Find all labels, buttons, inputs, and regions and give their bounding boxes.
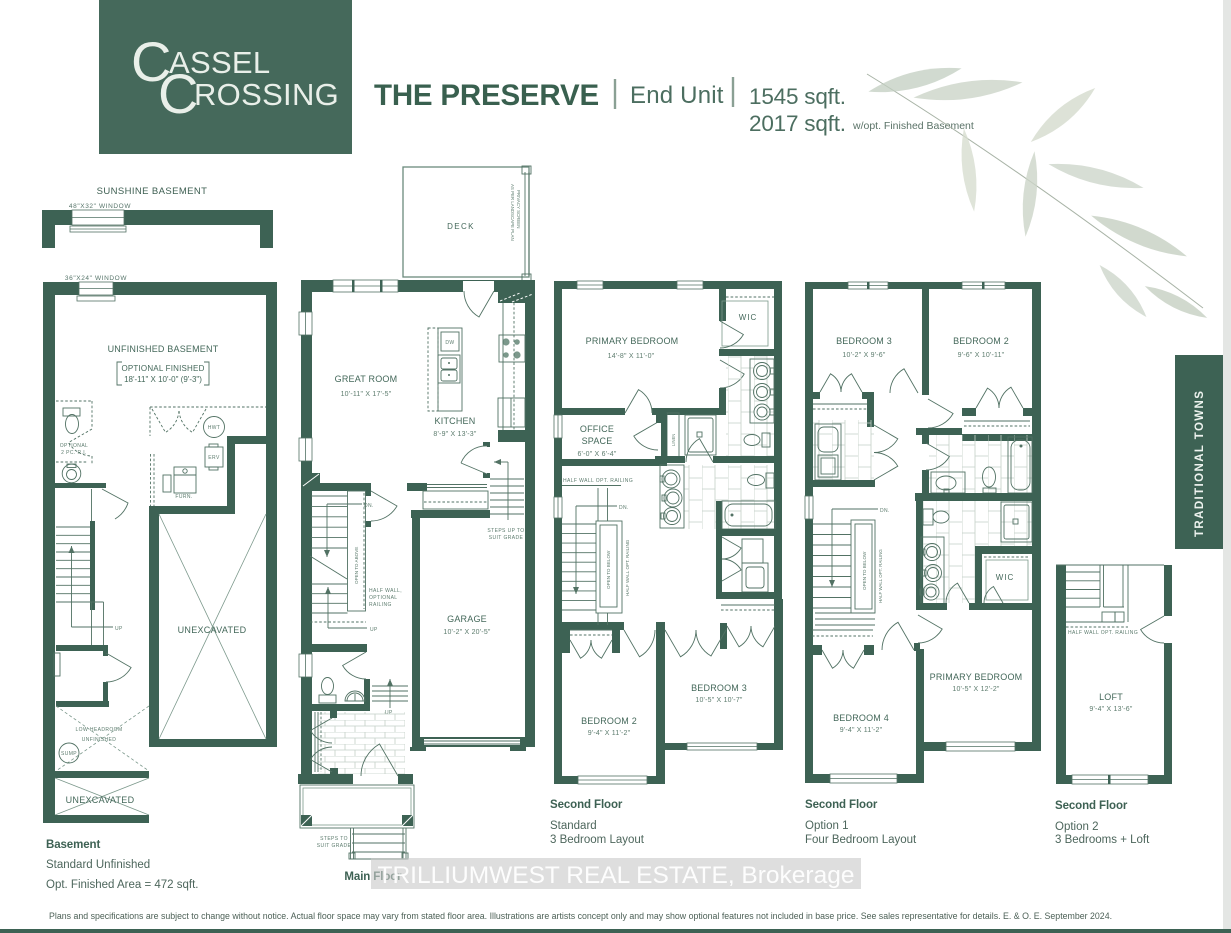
svg-text:10'-2" X 20'-5": 10'-2" X 20'-5" bbox=[443, 629, 491, 636]
svg-text:HALF WALL,: HALF WALL, bbox=[369, 588, 402, 594]
svg-text:C: C bbox=[158, 62, 198, 125]
svg-text:PRIMARY BEDROOM: PRIMARY BEDROOM bbox=[586, 336, 679, 346]
svg-text:HALF WALL OPT. RAILING: HALF WALL OPT. RAILING bbox=[625, 539, 630, 596]
svg-text:Second Floor: Second Floor bbox=[1055, 800, 1128, 812]
svg-text:STEPS UP TO: STEPS UP TO bbox=[487, 528, 524, 534]
svg-text:WIC: WIC bbox=[739, 313, 758, 322]
svg-text:UNFINISHED BASEMENT: UNFINISHED BASEMENT bbox=[108, 344, 219, 354]
svg-text:1545 sqft.: 1545 sqft. bbox=[749, 84, 846, 109]
svg-text:Standard Unfinished: Standard Unfinished bbox=[46, 859, 150, 871]
svg-text:SUIT GRADE: SUIT GRADE bbox=[317, 843, 352, 849]
svg-text:2 PC. R.I.: 2 PC. R.I. bbox=[61, 450, 87, 456]
svg-text:48"X32" WINDOW: 48"X32" WINDOW bbox=[69, 203, 131, 210]
svg-text:10'-11" X 17'-5": 10'-11" X 17'-5" bbox=[341, 391, 392, 398]
svg-text:9'-4" X 11'-2": 9'-4" X 11'-2" bbox=[840, 727, 883, 734]
svg-text:WIC: WIC bbox=[996, 573, 1015, 582]
svg-text:DN.: DN. bbox=[880, 508, 890, 514]
svg-text:OPEN TO BELOW: OPEN TO BELOW bbox=[606, 550, 611, 589]
svg-text:SUMP: SUMP bbox=[61, 751, 77, 757]
svg-text:LOW HEADROOM: LOW HEADROOM bbox=[75, 727, 122, 733]
svg-text:PRIMARY BEDROOM: PRIMARY BEDROOM bbox=[930, 672, 1023, 682]
svg-text:THE PRESERVE: THE PRESERVE bbox=[374, 79, 599, 112]
svg-text:OPEN TO ABOVE: OPEN TO ABOVE bbox=[354, 547, 359, 584]
svg-text:LOFT: LOFT bbox=[1099, 692, 1123, 702]
svg-text:Option 1: Option 1 bbox=[805, 820, 848, 832]
svg-text:End Unit: End Unit bbox=[630, 82, 724, 109]
svg-text:SUIT GRADE: SUIT GRADE bbox=[489, 535, 524, 541]
svg-text:18'-11" X 10'-0" (9'-3"): 18'-11" X 10'-0" (9'-3") bbox=[124, 375, 202, 384]
svg-text:Second Floor: Second Floor bbox=[550, 799, 623, 811]
svg-text:DECK: DECK bbox=[447, 222, 475, 231]
svg-text:KITCHEN: KITCHEN bbox=[435, 416, 476, 426]
svg-text:HALF WALL OPT. RAILING: HALF WALL OPT. RAILING bbox=[1068, 630, 1138, 636]
svg-text:UP: UP bbox=[115, 626, 123, 632]
svg-text:LINEN: LINEN bbox=[671, 434, 676, 446]
svg-text:STEPS TO: STEPS TO bbox=[320, 836, 348, 842]
svg-text:36"X24" WINDOW: 36"X24" WINDOW bbox=[65, 275, 127, 282]
svg-text:OFFICE: OFFICE bbox=[580, 424, 614, 434]
svg-text:8'-9" X 13'-3": 8'-9" X 13'-3" bbox=[433, 431, 476, 438]
svg-text:SUNSHINE BASEMENT: SUNSHINE BASEMENT bbox=[97, 186, 208, 197]
svg-text:Four Bedroom Layout: Four Bedroom Layout bbox=[805, 834, 917, 846]
svg-text:Option 2: Option 2 bbox=[1055, 821, 1098, 833]
svg-text:UNEXCAVATED: UNEXCAVATED bbox=[66, 795, 135, 805]
svg-text:6'-0" X 6'-4": 6'-0" X 6'-4" bbox=[577, 451, 616, 458]
svg-text:RAILING: RAILING bbox=[369, 602, 392, 608]
svg-text:UP: UP bbox=[370, 627, 378, 633]
svg-text:Basement: Basement bbox=[46, 839, 100, 851]
svg-text:DN.: DN. bbox=[619, 505, 629, 511]
svg-text:HALF WALL OPT. RAILING: HALF WALL OPT. RAILING bbox=[563, 478, 633, 484]
svg-text:SPACE: SPACE bbox=[582, 436, 613, 446]
svg-text:Plans and specifications are s: Plans and specifications are subject to … bbox=[49, 911, 1112, 921]
svg-text:BEDROOM 2: BEDROOM 2 bbox=[581, 716, 637, 726]
svg-text:Opt. Finished Area = 472 sqft.: Opt. Finished Area = 472 sqft. bbox=[46, 879, 198, 891]
svg-text:3 Bedrooms + Loft: 3 Bedrooms + Loft bbox=[1055, 834, 1150, 846]
svg-text:GREAT ROOM: GREAT ROOM bbox=[335, 374, 398, 384]
svg-text:Second Floor: Second Floor bbox=[805, 799, 878, 811]
svg-text:BEDROOM 3: BEDROOM 3 bbox=[836, 336, 892, 346]
svg-text:10'-5" X 10'-7": 10'-5" X 10'-7" bbox=[695, 697, 743, 704]
svg-text:9'-4" X 13'-6": 9'-4" X 13'-6" bbox=[1089, 706, 1132, 713]
svg-text:UNFINISHED: UNFINISHED bbox=[82, 737, 117, 743]
svg-text:3 Bedroom Layout: 3 Bedroom Layout bbox=[550, 834, 645, 846]
svg-text:HWT: HWT bbox=[208, 425, 221, 431]
svg-text:UNEXCAVATED: UNEXCAVATED bbox=[178, 625, 247, 635]
svg-text:OPTIONAL FINISHED: OPTIONAL FINISHED bbox=[121, 364, 204, 373]
svg-text:BEDROOM 2: BEDROOM 2 bbox=[953, 336, 1009, 346]
svg-text:10'-5" X 12'-2": 10'-5" X 12'-2" bbox=[952, 686, 1000, 693]
svg-text:DN.: DN. bbox=[364, 503, 374, 509]
svg-text:BEDROOM 3: BEDROOM 3 bbox=[691, 683, 747, 693]
svg-text:OPTIONAL: OPTIONAL bbox=[369, 595, 397, 601]
svg-text:DW: DW bbox=[445, 340, 454, 346]
svg-text:9'-6" X 10'-11": 9'-6" X 10'-11" bbox=[958, 352, 1005, 359]
svg-text:AS PER LANDSCAPE PLAN: AS PER LANDSCAPE PLAN bbox=[510, 184, 515, 241]
svg-text:OPEN TO BELOW: OPEN TO BELOW bbox=[862, 551, 867, 590]
svg-text:ROSSING: ROSSING bbox=[194, 77, 339, 112]
svg-text:PRIVACY SCREEN: PRIVACY SCREEN bbox=[516, 190, 521, 228]
svg-text:GARAGE: GARAGE bbox=[447, 614, 487, 624]
svg-text:9'-4" X 11'-2": 9'-4" X 11'-2" bbox=[588, 730, 631, 737]
svg-text:10'-2" X 9'-6": 10'-2" X 9'-6" bbox=[842, 352, 885, 359]
svg-text:Standard: Standard bbox=[550, 820, 597, 832]
svg-text:BEDROOM 4: BEDROOM 4 bbox=[833, 713, 889, 723]
svg-text:OPTIONAL: OPTIONAL bbox=[60, 443, 88, 449]
svg-text:14'-8" X 11'-0": 14'-8" X 11'-0" bbox=[608, 353, 655, 360]
svg-text:FURN.: FURN. bbox=[175, 494, 192, 500]
svg-text:ERV: ERV bbox=[208, 455, 220, 461]
svg-text:TRADITIONAL TOWNS: TRADITIONAL TOWNS bbox=[1194, 390, 1206, 537]
svg-text:HALF WALL OPT. RAILING: HALF WALL OPT. RAILING bbox=[878, 549, 883, 603]
svg-text:TRILLIUMWEST REAL ESTATE, Brok: TRILLIUMWEST REAL ESTATE, Brokerage bbox=[378, 862, 855, 889]
svg-text:2017 sqft.: 2017 sqft. bbox=[749, 111, 846, 136]
